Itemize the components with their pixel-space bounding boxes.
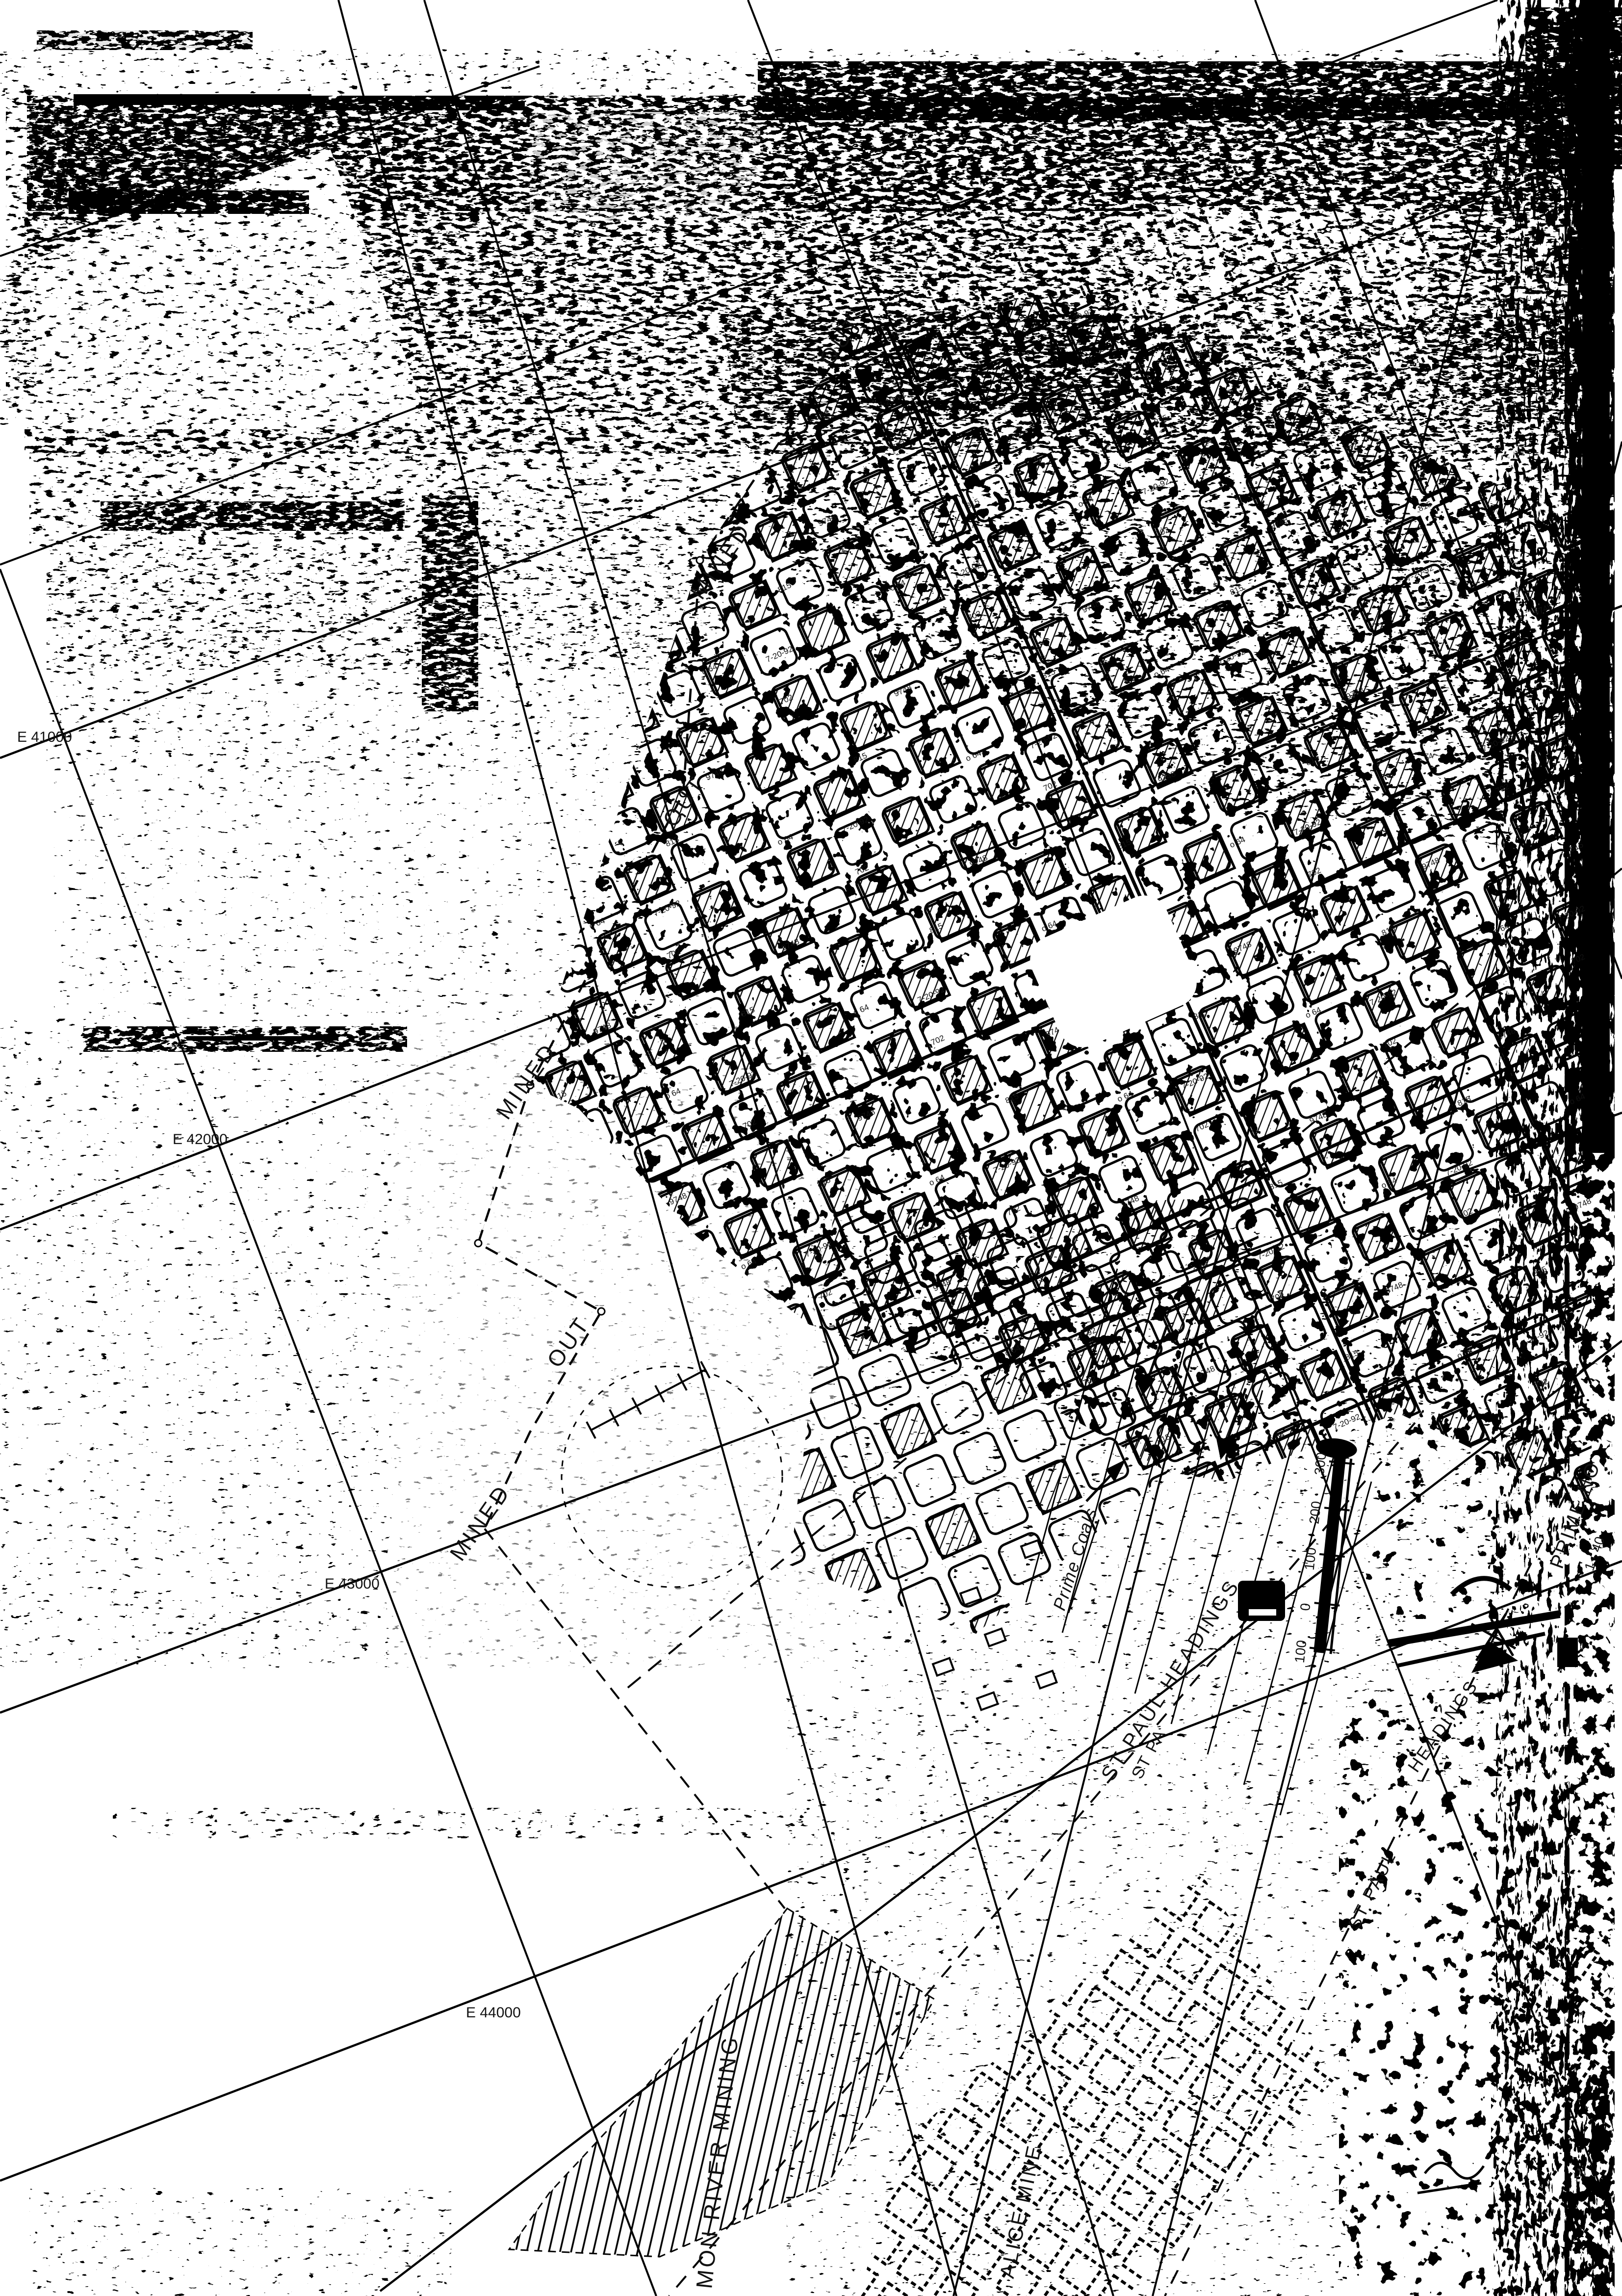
svg-text:0: 0 (1297, 1602, 1313, 1612)
svg-text:100: 100 (1292, 1640, 1310, 1664)
svg-text:300: 300 (1312, 1452, 1329, 1476)
svg-text:200: 200 (1307, 1500, 1324, 1525)
svg-text:E 42000: E 42000 (173, 1131, 228, 1148)
svg-text:E 41000: E 41000 (17, 729, 72, 745)
svg-text:E 43000: E 43000 (325, 1576, 380, 1592)
svg-text:100: 100 (1302, 1547, 1319, 1571)
svg-text:E 44000: E 44000 (466, 2005, 521, 2021)
